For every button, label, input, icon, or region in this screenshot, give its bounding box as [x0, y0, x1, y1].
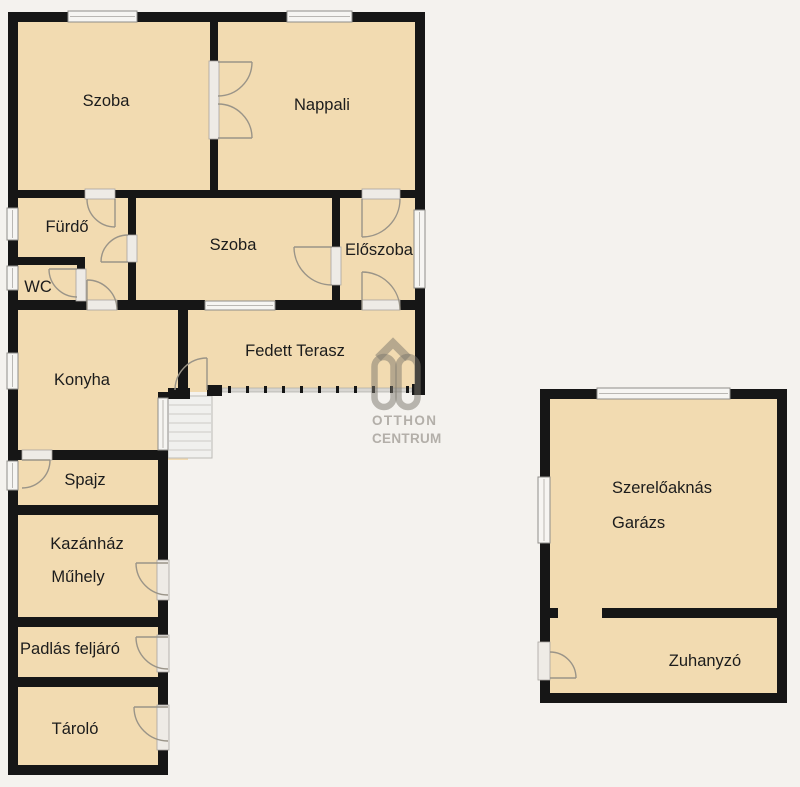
room-label-zuhanyzo: Zuhanyzó: [669, 653, 741, 670]
room-label-muhely: Műhely: [51, 569, 104, 586]
room-label-kazanhaz: Kazánház: [50, 536, 123, 553]
room-label-garazs-line1: Szerelőaknás: [612, 480, 712, 497]
room-label-szoba-2: Szoba: [210, 237, 257, 254]
room-label-nappali: Nappali: [294, 97, 350, 114]
room-label-garazs-line2: Garázs: [612, 515, 665, 532]
floor-plan: Szoba Nappali Fürdő Szoba Előszoba WC Ko…: [0, 0, 800, 787]
room-label-tarolo: Tároló: [52, 721, 99, 738]
room-label-szoba-1: Szoba: [83, 93, 130, 110]
room-label-wc: WC: [24, 279, 52, 296]
watermark-centrum: CENTRUM: [372, 432, 442, 446]
room-label-fedett-terasz: Fedett Terasz: [245, 343, 345, 360]
room-label-spajz: Spajz: [64, 472, 105, 489]
watermark-otthon: OTTHON: [372, 414, 437, 428]
room-label-konyha: Konyha: [54, 372, 110, 389]
room-label-eloszoba: Előszoba: [345, 242, 413, 259]
room-label-padlas-feljaro: Padlás feljáró: [20, 641, 120, 658]
room-label-furdo: Fürdő: [45, 219, 88, 236]
stairs: [168, 396, 212, 458]
